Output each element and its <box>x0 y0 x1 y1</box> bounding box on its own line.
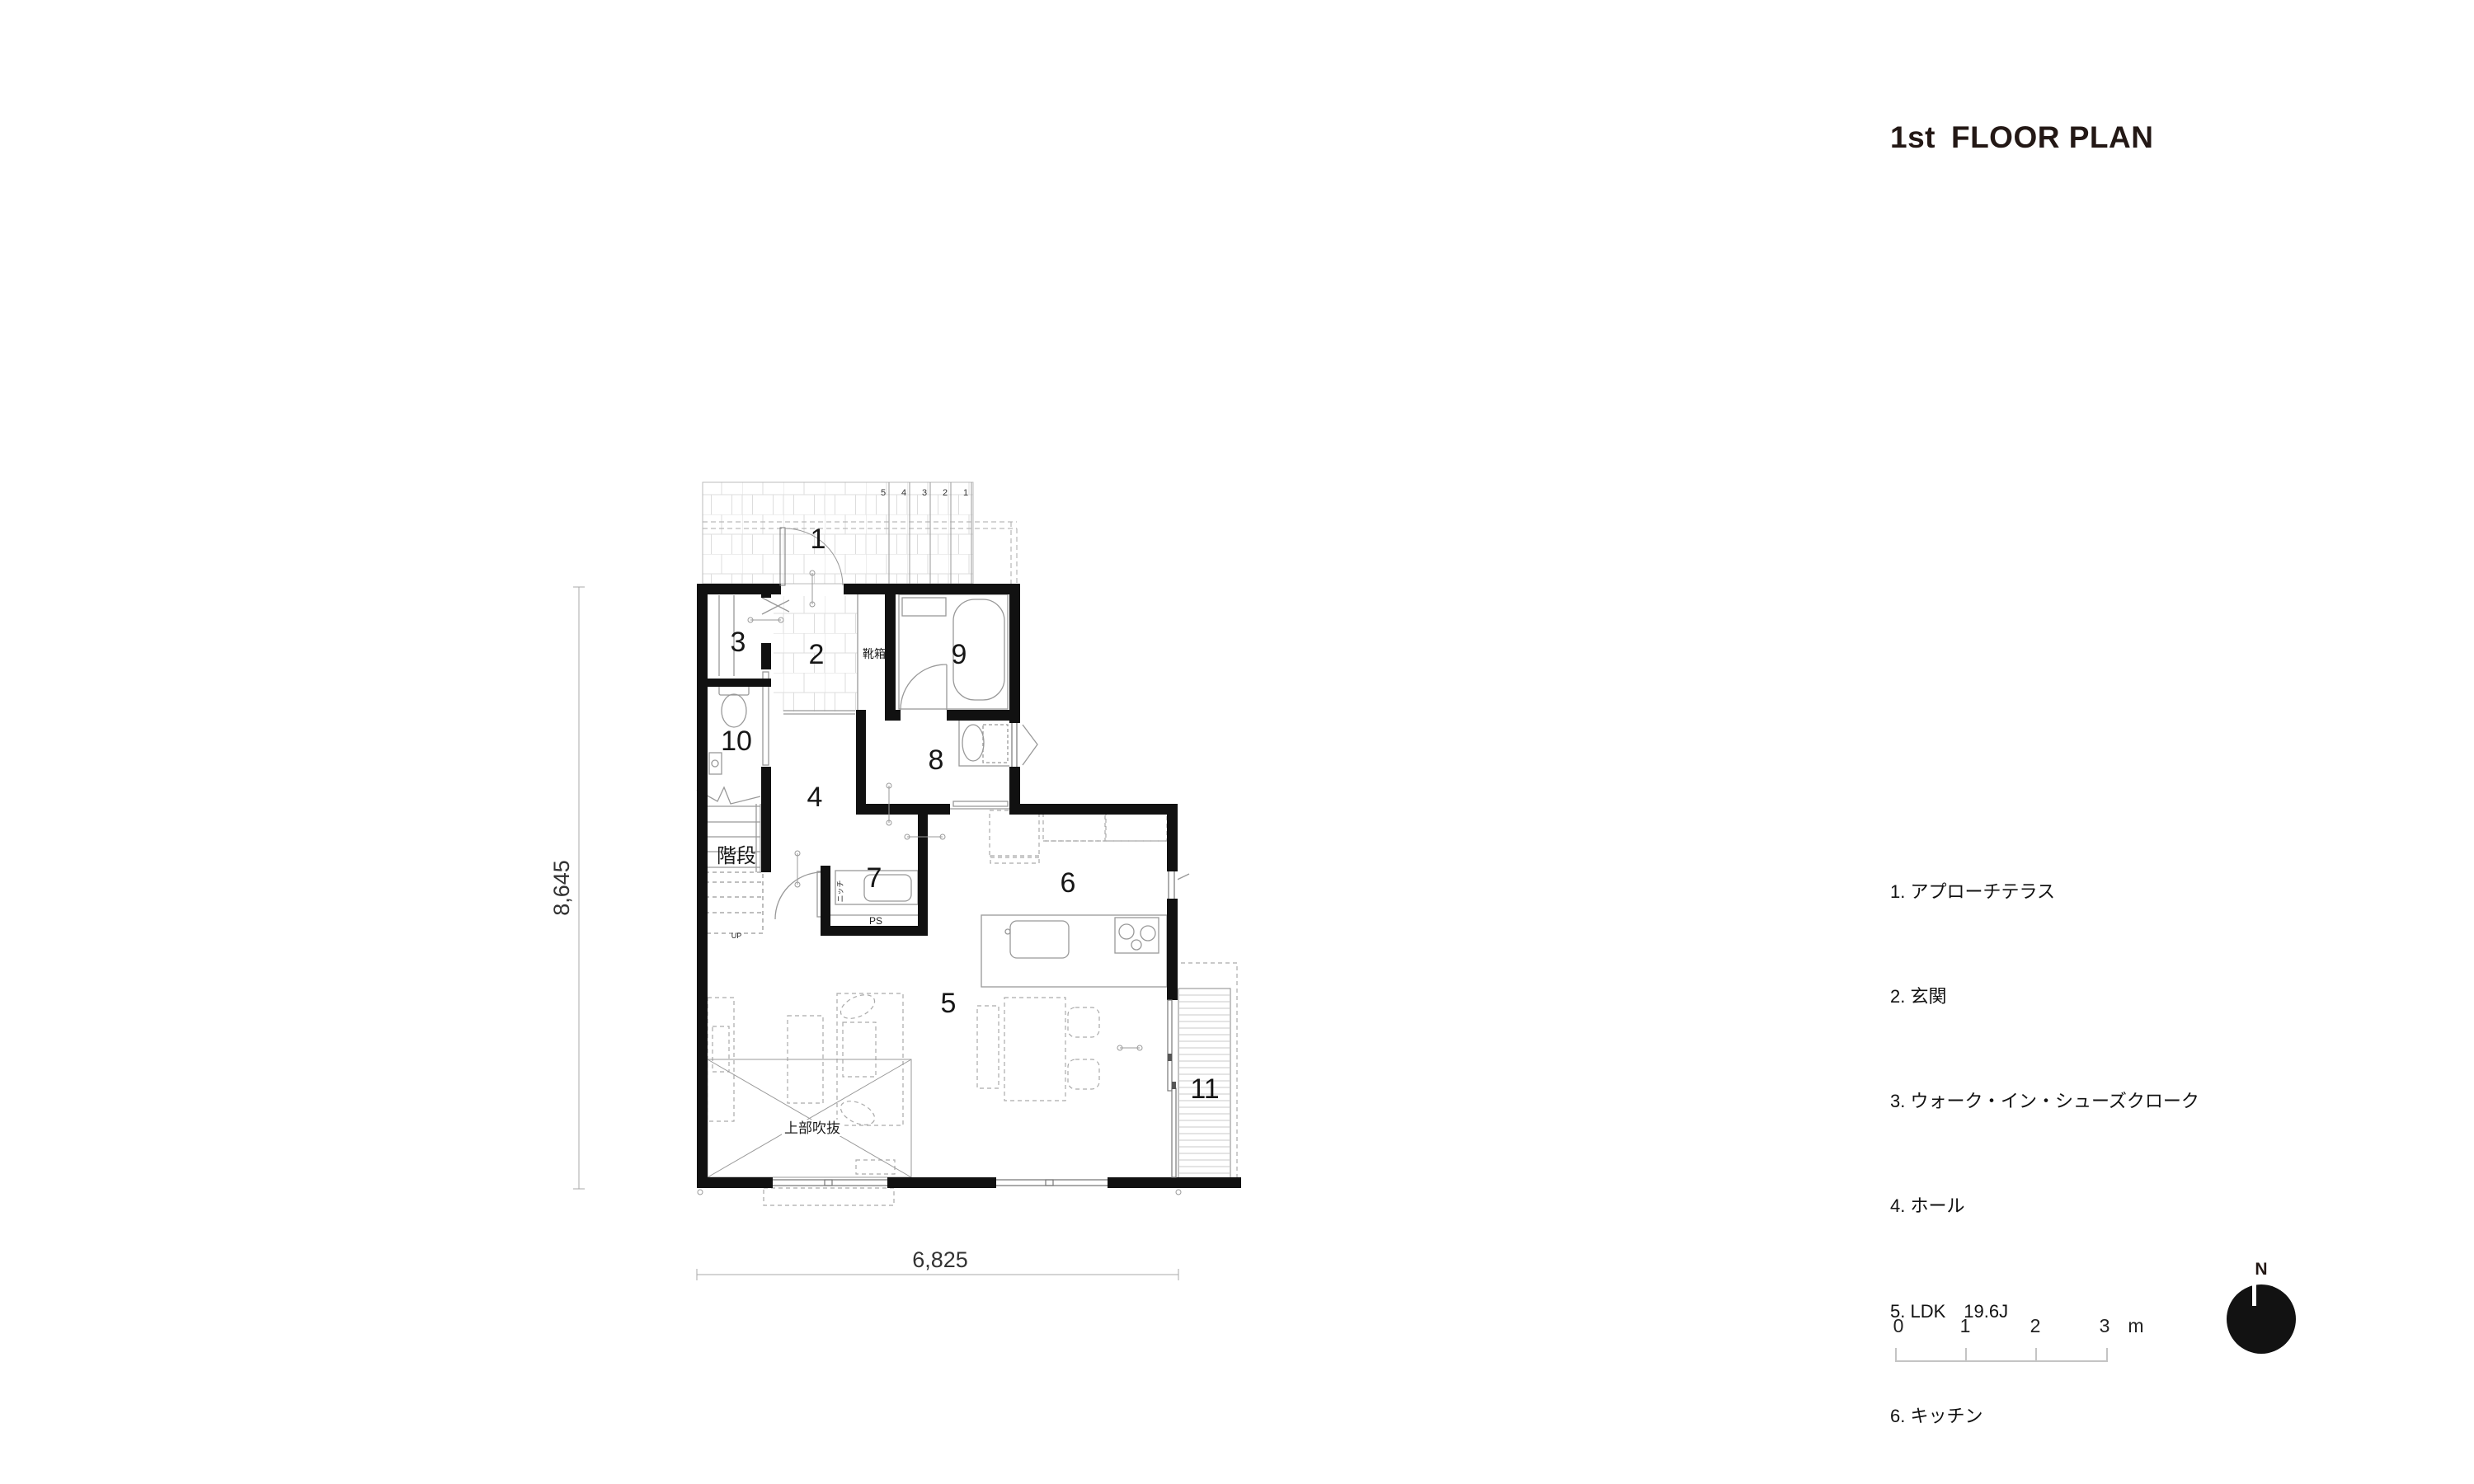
dimension-width: 6,825 <box>912 1247 968 1272</box>
legend-item: 1. アプローチテラス <box>1890 875 2199 909</box>
legend-item: 4. ホール <box>1890 1189 2199 1223</box>
void-label: 上部吹抜 <box>784 1120 840 1136</box>
outside-step <box>764 1188 894 1205</box>
scale-bar: 0 1 2 3 m <box>1885 1315 2149 1373</box>
shoe-box-label: 靴箱 <box>863 647 886 660</box>
legend-item: 2. 玄関 <box>1890 979 2199 1014</box>
upper-cabinet <box>1043 810 1105 841</box>
room-label-7: 7 <box>867 862 882 894</box>
room-label-6: 6 <box>1061 867 1076 899</box>
washing-machine <box>959 720 1012 766</box>
room-label-4: 4 <box>807 782 823 813</box>
step-number: 4 <box>901 488 906 498</box>
step-number: 1 <box>963 488 968 498</box>
page: 5 4 3 2 1 <box>0 0 2474 1484</box>
room-label-1: 1 <box>811 524 826 555</box>
scale-tick-label: 1 <box>1952 1315 1978 1337</box>
title-main: FLOOR PLAN <box>1951 120 2153 154</box>
refrigerator <box>990 810 1039 857</box>
north-label: N <box>2218 1260 2304 1280</box>
dimension-height: 8,645 <box>549 860 574 916</box>
room-label-9: 9 <box>952 639 967 670</box>
scale-tick-label: 3 <box>2091 1315 2118 1337</box>
sliding-door-kitchen <box>953 801 1008 806</box>
kitchen-island <box>981 915 1167 987</box>
legend-item: 3. ウォーク・イン・シューズクローク <box>1890 1084 2199 1119</box>
scale-unit: m <box>2123 1315 2149 1337</box>
dining-table <box>1004 998 1065 1101</box>
niche-label: ニッチ <box>836 880 844 902</box>
scale-ruler <box>1895 1348 2108 1362</box>
up-label: UP <box>731 932 742 940</box>
approach-terrace: 5 4 3 2 1 <box>703 482 1017 584</box>
north-indicator: N <box>2218 1253 2304 1360</box>
room-label-11: 11 <box>1190 1073 1219 1105</box>
stairs-label: 階段 <box>717 845 756 867</box>
window-swing-symbol <box>1023 725 1037 765</box>
north-circle-icon <box>2227 1284 2296 1354</box>
bath-counter <box>902 598 946 616</box>
step-number: 3 <box>922 488 927 498</box>
page-title: 1stFLOOR PLAN <box>1890 120 2153 155</box>
dining-chair <box>1068 1007 1099 1037</box>
scale-tick-label: 0 <box>1885 1315 1912 1337</box>
room-label-3: 3 <box>731 627 746 658</box>
step-number: 5 <box>881 488 886 498</box>
pipe-space-label: PS <box>869 915 882 927</box>
room-label-5: 5 <box>941 988 957 1019</box>
dining-bench <box>977 1006 999 1088</box>
legend-item: 6. キッチン <box>1890 1399 2199 1434</box>
hand-basin <box>709 753 722 774</box>
north-notch-icon <box>2252 1284 2256 1306</box>
title-prefix: 1st <box>1890 120 1935 155</box>
bath-door-arc <box>901 665 947 710</box>
toilet-bowl <box>722 694 746 727</box>
kitchen-sink <box>1010 921 1069 958</box>
step-number: 2 <box>943 488 948 498</box>
room-label-2: 2 <box>809 639 825 670</box>
furniture-dashed <box>708 810 1237 1205</box>
dining-chair <box>1068 1059 1099 1089</box>
room-legend: 1. アプローチテラス 2. 玄関 3. ウォーク・イン・シューズクローク 4.… <box>1890 805 2199 1484</box>
cooktop <box>1115 918 1159 953</box>
room-label-8: 8 <box>929 744 944 776</box>
scale-tick-label: 2 <box>2022 1315 2048 1337</box>
room-label-10: 10 <box>721 726 752 757</box>
void-above-area <box>708 1059 911 1177</box>
upper-cabinet <box>1106 810 1167 841</box>
